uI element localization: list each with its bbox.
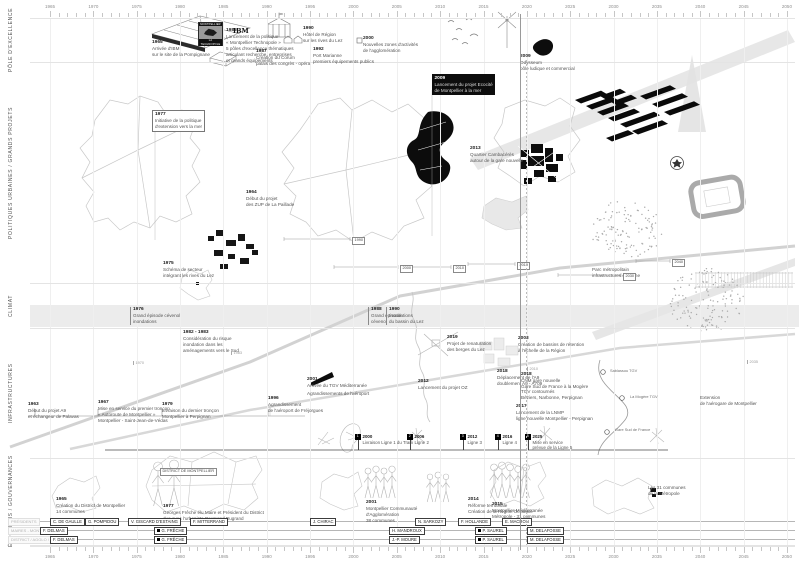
year-gridline <box>310 18 311 545</box>
segment-label: P. SAUREL <box>483 537 504 543</box>
axis-tick-top <box>588 13 589 17</box>
axis-year-top: 2010 <box>435 4 445 9</box>
axis-tick-bottom <box>631 547 632 551</box>
axis-tick-top <box>562 13 563 17</box>
axis-tick-top <box>119 13 120 17</box>
axis-tick-top <box>388 13 389 17</box>
axis-tick-bottom <box>310 547 311 553</box>
axis-tick-bottom <box>197 547 198 551</box>
axis-tick-bottom <box>76 547 77 551</box>
annotation-text: premiers équipements publics <box>313 59 374 65</box>
axis-tick-bottom <box>718 547 719 551</box>
year-gridline <box>527 18 528 545</box>
axis-tick-bottom <box>111 547 112 551</box>
annotation: 1990Hôtel de Régionsur les rives du Lez <box>303 26 343 44</box>
axis-year-bottom: 2015 <box>478 554 488 559</box>
technopole-poster: MONTPELLIER LA TECHNOPOLE <box>198 22 223 46</box>
axis-tick-bottom <box>674 547 675 551</box>
axis-tick-bottom <box>431 547 432 551</box>
axis-year-top: 1975 <box>132 4 142 9</box>
axis-tick-bottom <box>180 547 181 553</box>
annotation-text: autour de la gare nouvelle <box>470 158 523 164</box>
annotation-text: intégrant les rives du Lez <box>163 273 214 279</box>
axis-tick-bottom <box>189 547 190 551</box>
row-segment: G. FRÊCHE <box>154 527 187 535</box>
axis-tick-top <box>50 11 51 17</box>
annotation: 2000Nouvelles zones d'activitésde l'aggl… <box>363 36 418 54</box>
axis-separator <box>30 546 795 547</box>
axis-tick-top <box>232 13 233 17</box>
axis-tick-top <box>310 11 311 17</box>
axis-tick-bottom <box>622 547 623 551</box>
year-gridline <box>267 18 268 545</box>
annotation: TGV contournésBéziers, Narbonne, Perpign… <box>521 389 583 401</box>
row-segment: G. POMPIDOU <box>85 518 119 526</box>
axis-tick-bottom <box>232 547 233 551</box>
axis-year-top: 1965 <box>45 4 55 9</box>
year-gridline <box>614 18 615 545</box>
segment-label: G. POMPIDOU <box>88 519 116 525</box>
axis-tick-top <box>527 11 528 17</box>
axis-tick-bottom <box>275 547 276 551</box>
road-tick: 1970 <box>133 361 144 365</box>
axis-tick-bottom <box>241 547 242 551</box>
axis-tick-top <box>59 13 60 17</box>
annotation-text: ligne nouvelle Montpellier - Perpignan <box>516 416 593 422</box>
tram-marker-text: 2000Livraison Ligne 1 du Tram <box>363 434 414 445</box>
segment-label: P. SAUREL <box>483 528 504 534</box>
segment-label: V. GISCARD D'ESTAING <box>131 519 178 525</box>
annotation: 1979Livraison du dernier tronçonMontpell… <box>162 402 219 420</box>
axis-year-top: 2020 <box>522 4 532 9</box>
axis-tick-top <box>718 13 719 17</box>
axis-tick-bottom <box>336 547 337 551</box>
segment-marker <box>157 538 160 541</box>
segment-label: G. FRÊCHE <box>162 528 185 534</box>
axis-tick-bottom <box>440 547 441 553</box>
axis-tick-bottom <box>726 547 727 551</box>
label-chip: 2040 <box>672 259 685 267</box>
axis-tick-bottom <box>249 547 250 551</box>
axis-year-top: 1990 <box>262 4 272 9</box>
annotation: Extensionde l'aérogare de Montpellier <box>700 395 757 407</box>
axis-tick-top <box>596 13 597 17</box>
year-gridline <box>223 18 224 545</box>
axis-tick-top <box>614 11 615 17</box>
axis-tick-bottom <box>579 547 580 551</box>
station-label: Sablassou TGV <box>610 368 637 373</box>
annotation-text: pôle ludique et commercial <box>520 66 575 72</box>
axis-tick-bottom <box>397 547 398 553</box>
segment-label: J.-P. MOURE <box>392 537 417 543</box>
axis-tick-top <box>423 13 424 17</box>
axis-year-top: 1995 <box>305 4 315 9</box>
axis-tick-bottom <box>119 547 120 551</box>
annotation: 1963Début du projet A9et échangeur de Pa… <box>28 402 79 420</box>
row-label: PRÉSIDENTS <box>8 518 40 526</box>
axis-tick-bottom <box>457 547 458 551</box>
axis-tick-top <box>683 13 684 17</box>
axis-tick-top <box>726 13 727 17</box>
segment-label: C. DE GAULLE <box>53 519 82 525</box>
axis-tick-top <box>761 13 762 17</box>
axis-tick-bottom <box>59 547 60 551</box>
ibm-label: IBM <box>233 27 249 35</box>
axis-tick-top <box>674 13 675 17</box>
axis-tick-top <box>362 13 363 17</box>
year-gridline <box>440 18 441 545</box>
axis-tick-bottom <box>93 547 94 553</box>
axis-tick-top <box>492 13 493 17</box>
annotation: 1977Initiative de la politiqued'extensio… <box>152 110 205 132</box>
axis-year-top: 2015 <box>478 4 488 9</box>
band-separator <box>30 18 795 19</box>
axis-year-top: 2035 <box>652 4 662 9</box>
annotation: 2009Lancement du projet Ecocitéde Montpe… <box>432 74 495 95</box>
label-chip: 2000 <box>400 265 413 273</box>
axis-tick-bottom <box>466 547 467 551</box>
axis-tick-bottom <box>648 547 649 551</box>
year-gridline <box>353 18 354 545</box>
band-label-0: Pôle d'excellence <box>4 18 18 62</box>
axis-tick-top <box>657 11 658 17</box>
segment-label: M. DELAFOSSE <box>530 528 561 534</box>
year-gridline <box>93 18 94 545</box>
axis-tick-top <box>405 13 406 17</box>
year-gridline <box>787 18 788 545</box>
tram-marker-text: 2025Mise en serviceprévue de la Ligne 5 <box>533 434 573 451</box>
axis-tick-top <box>553 13 554 17</box>
axis-tick-top <box>787 11 788 17</box>
row-segment: V. GISCARD D'ESTAING <box>128 518 181 526</box>
annotation-text: 14 communes <box>56 509 125 515</box>
annotation: 2009Odysseumpôle ludique et commercial <box>520 54 575 72</box>
axis-year-bottom: 1965 <box>45 554 55 559</box>
axis-tick-bottom <box>223 547 224 553</box>
axis-tick-top <box>544 13 545 17</box>
axis-tick-top <box>397 11 398 17</box>
axis-tick-bottom <box>128 547 129 551</box>
annotation-text: du bassin du Lez <box>389 319 424 325</box>
axis-tick-bottom <box>301 547 302 551</box>
station-label: Gare Sud de France <box>615 427 650 432</box>
axis-tick-top <box>744 11 745 17</box>
axis-tick-top <box>267 11 268 17</box>
axis-tick-top <box>770 13 771 17</box>
row-segment: J. CHIRAC <box>310 518 336 526</box>
axis-tick-top <box>631 13 632 17</box>
axis-tick-top <box>431 13 432 17</box>
annotation: 2019Projet de renaturationdes berges du … <box>447 335 491 353</box>
label-chip: 2030 <box>623 273 636 281</box>
axis-tick-top <box>301 13 302 17</box>
band-label-1: Politiques urbaines / Grands projets <box>4 62 18 283</box>
band-label-3: Infrastructures <box>4 328 18 458</box>
annotation: 2001Arrivée du TGV Méditerranée <box>307 377 367 389</box>
year-gridline <box>744 18 745 545</box>
row-segment: N. SARKOZY <box>415 518 446 526</box>
axis-tick-top <box>345 13 346 17</box>
band-separator <box>30 62 795 63</box>
axis-tick-top <box>692 13 693 17</box>
axis-tick-top <box>189 13 190 17</box>
axis-tick-top <box>457 13 458 17</box>
axis-tick-bottom <box>171 547 172 551</box>
annotation-text: sur les rives du Lez <box>303 38 343 44</box>
row-segment: F. HOLLANDE <box>458 518 491 526</box>
axis-tick-top <box>206 13 207 17</box>
axis-tick-top <box>293 13 294 17</box>
axis-tick-top <box>223 11 224 17</box>
annotation: 2018CNM gare nouvelleGare Sud de France … <box>521 372 588 390</box>
axis-tick-bottom <box>761 547 762 551</box>
axis-year-bottom: 1985 <box>218 554 228 559</box>
axis-year-bottom: 2020 <box>522 554 532 559</box>
axis-year-bottom: 2005 <box>392 554 402 559</box>
year-gridline <box>180 18 181 545</box>
axis-tick-bottom <box>327 547 328 551</box>
row-segment: M. DELAFOSSE <box>527 527 564 535</box>
axis-tick-bottom <box>666 547 667 551</box>
axis-year-top: 2030 <box>609 4 619 9</box>
axis-tick-top <box>336 13 337 17</box>
axis-tick-bottom <box>614 547 615 553</box>
axis-tick-bottom <box>536 547 537 551</box>
axis-tick-bottom <box>345 547 346 551</box>
axis-tick-top <box>93 11 94 17</box>
row-segment: E. MACRON <box>502 518 532 526</box>
annotation: 1964Début du projetdes ZUP de La Paillad… <box>246 190 294 208</box>
axis-tick-top <box>258 13 259 17</box>
axis-tick-top <box>379 13 380 17</box>
axis-tick-bottom <box>752 547 753 551</box>
axis-year-bottom: 1980 <box>175 554 185 559</box>
axis-tick-top <box>449 13 450 17</box>
row-segment: F. DELMAS <box>50 536 78 544</box>
axis-tick-top <box>154 13 155 17</box>
annotation: 2001Montpellier Communautéd'Agglomératio… <box>366 500 417 524</box>
tram-marker-text: 2006Ligne 2 <box>415 434 429 445</box>
axis-tick-bottom <box>709 547 710 551</box>
road-tick: 2010 <box>527 367 538 371</box>
row-segment: M. DELAFOSSE <box>527 536 564 544</box>
axis-tick-bottom <box>145 547 146 551</box>
axis-year-bottom: 1975 <box>132 554 142 559</box>
label-chip: 1990 <box>352 237 365 245</box>
segment-label: N. SARKOZY <box>418 519 443 525</box>
annotation-text: sur le site de la Pompignane <box>152 52 210 58</box>
present-line <box>520 14 521 550</box>
year-gridline <box>484 18 485 545</box>
segment-marker <box>478 529 481 532</box>
text-layer: 1965196519701970197519751980198019851985… <box>0 0 799 567</box>
axis-tick-bottom <box>85 547 86 551</box>
axis-tick-bottom <box>683 547 684 551</box>
axis-year-top: 1980 <box>175 4 185 9</box>
annotation-text: à l'échelle de la Région <box>518 348 584 354</box>
axis-tick-top <box>275 13 276 17</box>
annotation: 2003Création de bassins de rétentionà l'… <box>518 336 584 354</box>
axis-tick-bottom <box>293 547 294 551</box>
axis-tick-bottom <box>588 547 589 551</box>
annotation-text: des ZUP de La Paillade <box>246 202 294 208</box>
axis-year-top: 2005 <box>392 4 402 9</box>
axis-tick-top <box>102 13 103 17</box>
band-separator <box>30 458 795 459</box>
year-gridline <box>570 18 571 545</box>
axis-tick-bottom <box>371 547 372 551</box>
axis-tick-top <box>353 11 354 17</box>
axis-tick-top <box>145 13 146 17</box>
axis-year-top: 2000 <box>348 4 358 9</box>
annotation: 1987Création du Corumpalais des congrès … <box>256 49 310 67</box>
axis-tick-bottom <box>67 547 68 551</box>
axis-tick-bottom <box>206 547 207 551</box>
axis-tick-top <box>319 13 320 17</box>
axis-tick-bottom <box>605 547 606 551</box>
axis-tick-bottom <box>163 547 164 551</box>
axis-tick-top <box>579 13 580 17</box>
annotation: 1967Mise en service du premier tronçon« … <box>98 400 170 424</box>
axis-year-bottom: 1995 <box>305 554 315 559</box>
axis-tick-top <box>284 13 285 17</box>
axis-tick-bottom <box>744 547 745 553</box>
axis-year-bottom: 1970 <box>88 554 98 559</box>
axis-tick-bottom <box>267 547 268 553</box>
axis-year-top: 1970 <box>88 4 98 9</box>
year-gridline <box>397 18 398 545</box>
axis-tick-bottom <box>700 547 701 553</box>
annotation: 1976Grand épisode cévenolinondations <box>130 307 180 325</box>
band-label-2: Climat <box>4 283 18 328</box>
axis-year-top: 1985 <box>218 4 228 9</box>
annotation: 2012Lancement du projet OZ <box>418 379 468 391</box>
annotation-text: de l'aérogare de Montpellier <box>700 401 757 407</box>
axis-tick-top <box>536 13 537 17</box>
axis-tick-top <box>128 13 129 17</box>
axis-year-bottom: 2025 <box>565 554 575 559</box>
tram-marker-drop <box>498 440 499 451</box>
label-chip: DISTRICT DE MONTPELLIER <box>160 468 217 476</box>
year-gridline <box>50 18 51 545</box>
segment-label: M. DELAFOSSE <box>530 537 561 543</box>
annotation-text: de Montpellier à la mer <box>435 88 493 94</box>
segment-marker <box>478 538 481 541</box>
annotation-text: d'extension vers la mer <box>155 124 202 130</box>
axis-tick-bottom <box>510 547 511 551</box>
tram-marker-text: 2012Ligne 3 <box>468 434 482 445</box>
axis-tick-bottom <box>379 547 380 551</box>
row-segment: C. DE GAULLE <box>50 518 85 526</box>
axis-tick-bottom <box>414 547 415 551</box>
road-tick: 1983 <box>231 351 242 355</box>
axis-tick-top <box>371 13 372 17</box>
axis-year-bottom: 2045 <box>739 554 749 559</box>
axis-tick-bottom <box>570 547 571 553</box>
annotation-text: Agrandissements de l'aéroport <box>307 391 369 397</box>
axis-year-bottom: 2050 <box>782 554 792 559</box>
axis-tick-top <box>648 13 649 17</box>
axis-tick-bottom <box>640 547 641 551</box>
annotation-text: Lancement du projet Ecocité <box>435 82 493 88</box>
axis-tick-bottom <box>484 547 485 553</box>
axis-tick-top <box>440 11 441 17</box>
segment-label: J. CHIRAC <box>313 519 333 525</box>
axis-tick-top <box>163 13 164 17</box>
axis-year-bottom: 2040 <box>695 554 705 559</box>
segment-marker <box>157 529 160 532</box>
axis-tick-top <box>700 11 701 17</box>
axis-tick-bottom <box>449 547 450 551</box>
axis-tick-top <box>735 13 736 17</box>
axis-tick-bottom <box>154 547 155 551</box>
axis-tick-bottom <box>102 547 103 551</box>
year-gridline <box>657 18 658 545</box>
axis-tick-bottom <box>362 547 363 551</box>
row-segment: J.-P. MOURE <box>389 536 420 544</box>
axis-tick-top <box>171 13 172 17</box>
annotation-text: 38 communes <box>366 518 417 524</box>
band-separator <box>30 328 795 329</box>
annotation-text: Montpellier à Perpignan <box>162 414 219 420</box>
axis-year-top: 2050 <box>782 4 792 9</box>
axis-year-bottom: 2000 <box>348 554 358 559</box>
annotation-text: des berges du Lez <box>447 347 491 353</box>
annotation-text: inondations <box>133 319 180 325</box>
annotation: 1996Agrandissementde l'aéroport de Fréjo… <box>268 396 323 414</box>
axis-year-top: 2040 <box>695 4 705 9</box>
annotation: 1990Inondationsdu bassin du Lez <box>386 307 424 325</box>
tram-marker-drop <box>463 440 464 451</box>
annotation-text: de l'aéroport de Fréjorgues <box>268 408 323 414</box>
axis-tick-bottom <box>770 547 771 551</box>
tram-marker-text: 2016Ligne 4 <box>503 434 517 445</box>
axis-tick-top <box>76 13 77 17</box>
axis-tick-top <box>475 13 476 17</box>
band-separator <box>30 283 795 284</box>
axis-tick-bottom <box>562 547 563 551</box>
road-tick: 2035 <box>747 360 758 364</box>
axis-tick-bottom <box>787 547 788 553</box>
row-segment: G. FRÊCHE <box>154 536 187 544</box>
station-label: La Mogère TGV <box>630 394 658 399</box>
axis-tick-top <box>622 13 623 17</box>
annotation-text: de l'agglomération <box>363 48 418 54</box>
tram-marker-drop <box>410 440 411 451</box>
annotation-text: palais des congrès - opéra <box>256 61 310 67</box>
axis-tick-top <box>501 13 502 17</box>
axis-tick-top <box>111 13 112 17</box>
axis-tick-top <box>215 13 216 17</box>
axis-tick-top <box>605 13 606 17</box>
axis-tick-top <box>666 13 667 17</box>
axis-tick-bottom <box>319 547 320 551</box>
axis-tick-bottom <box>657 547 658 553</box>
tram-marker-drop <box>528 440 529 451</box>
segment-label: F. HOLLANDE <box>461 519 488 525</box>
axis-tick-bottom <box>544 547 545 551</box>
annotation: 2017Lancement de la LNMPligne nouvelle M… <box>516 404 593 422</box>
segment-label: G. FRÊCHE <box>162 537 185 543</box>
poster-title-bottom: LA TECHNOPOLE <box>199 39 222 46</box>
axis-year-top: 2025 <box>565 4 575 9</box>
axis-tick-top <box>570 11 571 17</box>
axis-tick-top <box>197 13 198 17</box>
axis-tick-top <box>414 13 415 17</box>
axis-tick-top <box>510 13 511 17</box>
axis-tick-top <box>709 13 710 17</box>
axis-tick-bottom <box>692 547 693 551</box>
